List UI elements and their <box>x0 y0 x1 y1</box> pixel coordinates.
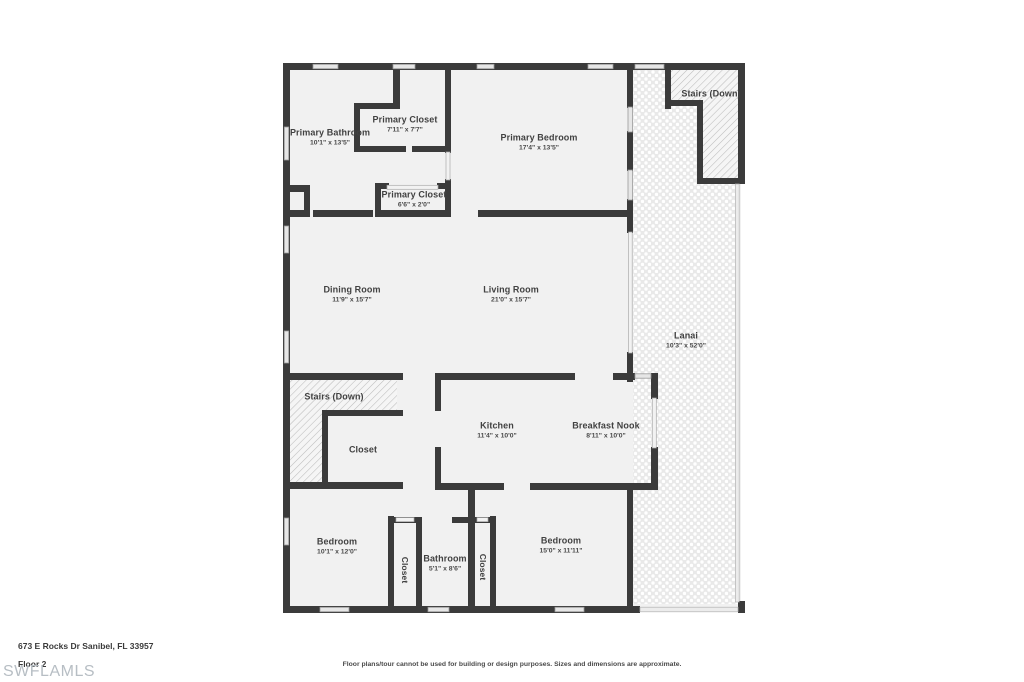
room-name: Bedroom <box>317 537 357 548</box>
room-name: Closet <box>400 557 410 584</box>
room-label-bedroom-left: Bedroom 10'1" x 12'0" <box>317 537 357 556</box>
room-dims: 15'0" x 11'11" <box>540 547 583 554</box>
room-dims: 7'11" x 7'7" <box>373 126 438 133</box>
floor-plan-drawing <box>0 0 1024 682</box>
room-label-breakfast-nook: Breakfast Nook 8'11" x 10'0" <box>572 421 639 440</box>
room-dims: 11'4" x 10'0" <box>477 432 517 439</box>
room-dims: 11'9" x 15'7" <box>323 296 380 303</box>
room-name: Closet <box>349 445 377 456</box>
room-label-living-room: Living Room 21'0" x 15'7" <box>483 285 539 304</box>
room-dims: 10'1" x 13'5" <box>288 139 372 146</box>
disclaimer-text: Floor plans/tour cannot be used for buil… <box>0 661 1024 668</box>
room-name: Primary Closet <box>382 190 447 201</box>
room-name: Primary Closet <box>373 115 438 126</box>
floor-plan-page: Primary Bathroom 10'1" x 13'5" Primary C… <box>0 0 1024 682</box>
room-label-primary-closet: Primary Closet 7'11" x 7'7" <box>373 115 438 134</box>
room-dims: 8'11" x 10'0" <box>572 432 639 439</box>
room-label-primary-closet-small: Primary Closet 6'6" x 2'0" <box>382 190 447 209</box>
room-name: Kitchen <box>477 421 517 432</box>
room-dims: 5'1" x 8'6" <box>423 565 466 572</box>
room-name: Living Room <box>483 285 539 296</box>
room-label-bathroom: Bathroom 5'1" x 8'6" <box>423 554 466 573</box>
property-address: 673 E Rocks Dr Sanibel, FL 33957 <box>18 641 153 651</box>
room-label-stairs-down-upper: Stairs (Down) <box>681 89 740 100</box>
room-name: Primary Bedroom <box>500 133 577 144</box>
room-dims: 10'1" x 12'0" <box>317 548 357 555</box>
room-name: Dining Room <box>323 285 380 296</box>
room-name: Closet <box>478 554 488 581</box>
room-name: Breakfast Nook <box>572 421 639 432</box>
room-name: Primary Bathroom <box>288 128 372 139</box>
room-label-closet-1: Closet <box>400 557 410 584</box>
room-label-lanai: Lanai 10'3" x 52'0" <box>666 331 706 350</box>
room-label-bedroom-right: Bedroom 15'0" x 11'11" <box>540 536 583 555</box>
room-name: Stairs (Down) <box>681 89 740 100</box>
room-label-primary-bedroom: Primary Bedroom 17'4" x 13'5" <box>500 133 577 152</box>
room-name: Bathroom <box>423 554 466 565</box>
room-label-kitchen: Kitchen 11'4" x 10'0" <box>477 421 517 440</box>
room-name: Stairs (Down) <box>304 392 363 403</box>
room-dims: 6'6" x 2'0" <box>382 201 447 208</box>
room-label-closet-2: Closet <box>478 554 488 581</box>
room-dims: 17'4" x 13'5" <box>500 144 577 151</box>
room-label-stairs-down-lower: Stairs (Down) <box>304 392 363 403</box>
room-label-closet-stairs: Closet <box>349 445 377 456</box>
room-name: Lanai <box>666 331 706 342</box>
room-dims: 21'0" x 15'7" <box>483 296 539 303</box>
room-dims: 10'3" x 52'0" <box>666 342 706 349</box>
room-label-primary-bathroom: Primary Bathroom 10'1" x 13'5" <box>288 128 372 147</box>
room-name: Bedroom <box>540 536 583 547</box>
room-label-dining-room: Dining Room 11'9" x 15'7" <box>323 285 380 304</box>
